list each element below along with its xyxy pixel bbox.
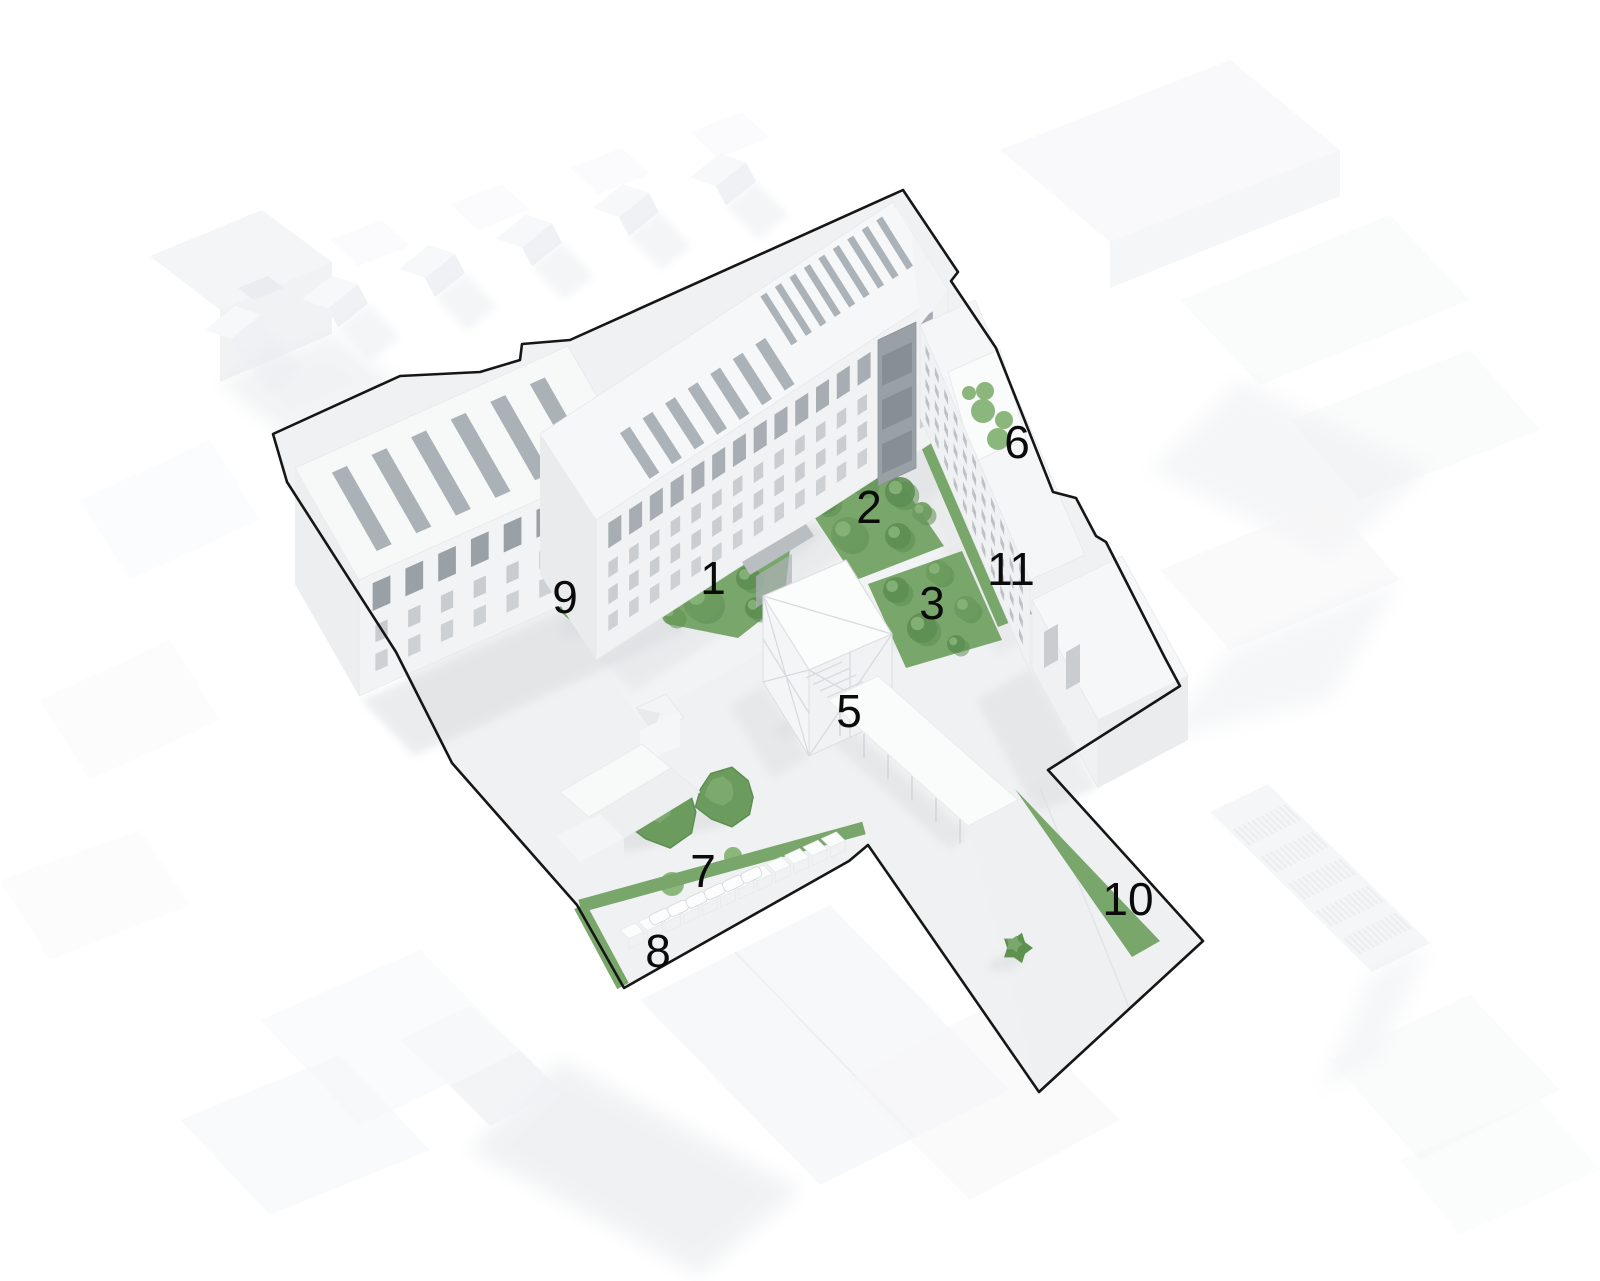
area-label-8: 8 (645, 925, 671, 977)
annex-window (1066, 644, 1080, 690)
area-label-10: 10 (1102, 873, 1153, 925)
area-label-5: 5 (836, 685, 862, 737)
area-label-6: 6 (1004, 416, 1030, 468)
area-label-2: 2 (856, 481, 882, 533)
tree-highlight (949, 637, 957, 645)
area-label-11: 11 (987, 543, 1035, 595)
tree-highlight (957, 599, 968, 610)
area-label-3: 3 (919, 577, 945, 629)
ctx-block (40, 640, 220, 780)
diagram-canvas: 123567891011 (0, 0, 1600, 1281)
planter-circle (971, 399, 995, 423)
tree-highlight (929, 563, 940, 574)
ctx-block (0, 830, 190, 960)
ctx-block (570, 148, 650, 194)
ctx-block (690, 112, 770, 158)
area-label-7: 7 (690, 845, 716, 897)
planter-circle (962, 386, 976, 400)
tree-highlight (886, 580, 898, 592)
tree-highlight (889, 481, 903, 495)
area-label-9: 9 (552, 571, 578, 623)
tree-highlight (888, 526, 900, 538)
planter-circle (976, 382, 994, 400)
ctx-block (330, 220, 410, 266)
tree-highlight (915, 505, 924, 514)
site-axonometric-diagram: 123567891011 (0, 0, 1600, 1281)
tree-highlight (835, 521, 850, 536)
ctx-rowhouse (1210, 784, 1430, 972)
ctx-block (80, 440, 260, 580)
area-label-1: 1 (700, 552, 726, 604)
